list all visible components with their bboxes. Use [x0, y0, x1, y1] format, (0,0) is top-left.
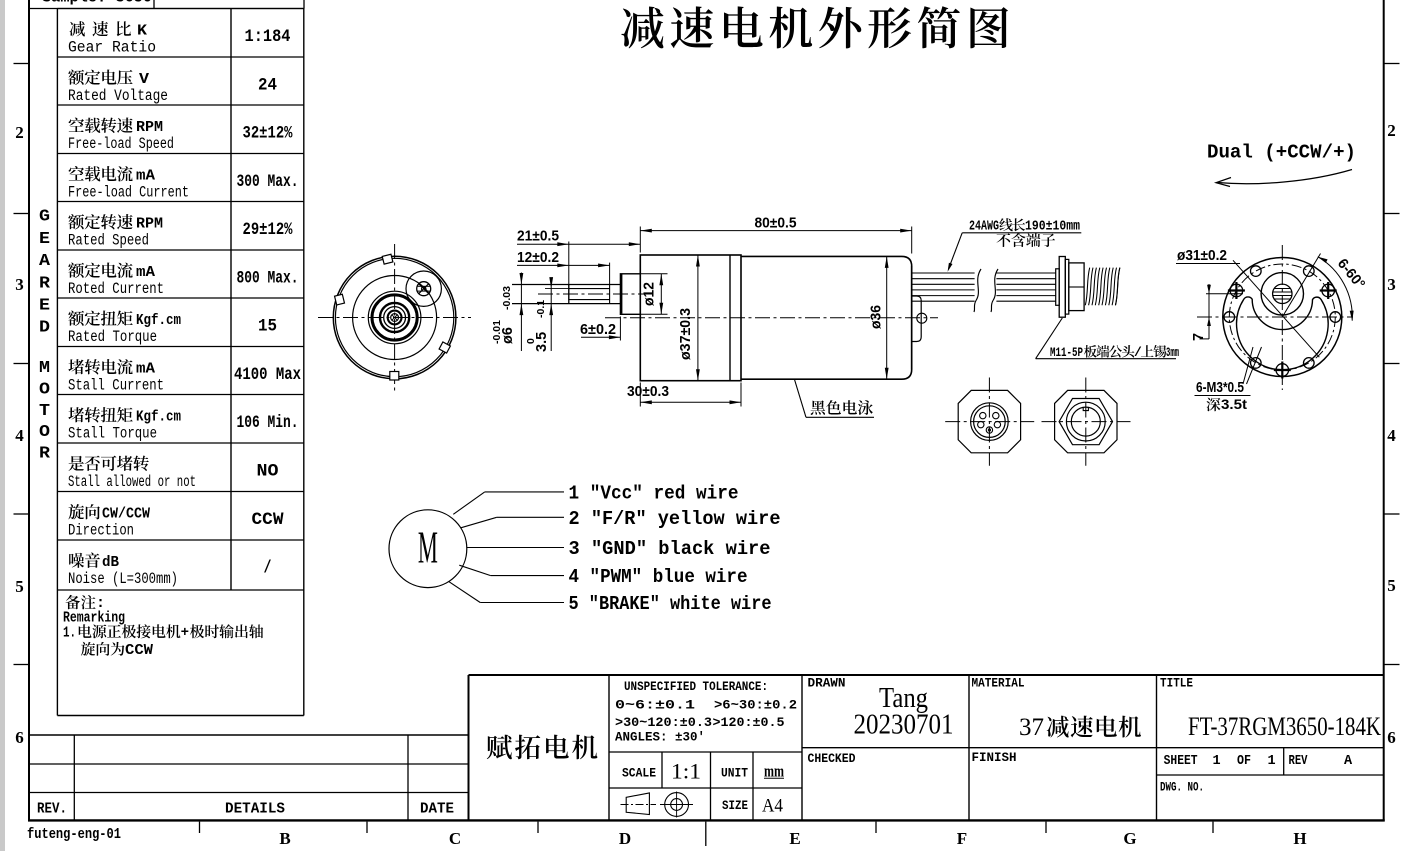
svg-text:UNIT: UNIT	[721, 765, 748, 780]
svg-text:5: 5	[15, 577, 24, 596]
svg-text:20230701: 20230701	[854, 709, 954, 741]
svg-text:DETAILS: DETAILS	[225, 801, 285, 818]
svg-text:H: H	[1293, 829, 1306, 848]
svg-text:A4: A4	[762, 796, 783, 817]
svg-text:E: E	[39, 297, 50, 316]
svg-text:RPM: RPM	[136, 119, 163, 136]
svg-text:CW/CCW: CW/CCW	[102, 506, 150, 523]
svg-text:3mm: 3mm	[1166, 345, 1179, 360]
svg-text:TITLE: TITLE	[1160, 677, 1193, 691]
svg-text:1: 1	[1268, 754, 1276, 769]
svg-text:mA: mA	[136, 361, 155, 378]
svg-text:>6~30:±0.2: >6~30:±0.2	[714, 698, 797, 713]
svg-text:G: G	[1123, 829, 1136, 848]
svg-text:G: G	[39, 208, 50, 227]
svg-text:21±0.5: 21±0.5	[517, 229, 559, 245]
svg-text:Sample: 3650: Sample: 3650	[42, 0, 152, 7]
svg-text:FINISH: FINISH	[972, 751, 1017, 765]
svg-text:2 ″F/R″ yellow wire: 2 ″F/R″ yellow wire	[569, 508, 781, 530]
svg-text:6: 6	[1387, 728, 1396, 747]
svg-text:M11-5P: M11-5P	[1050, 345, 1083, 360]
svg-text:F: F	[957, 829, 967, 848]
svg-text:Roted Current: Roted Current	[68, 280, 164, 298]
svg-text:30±0.3: 30±0.3	[627, 384, 669, 400]
svg-text:D: D	[39, 319, 50, 338]
svg-text:UNSPECIFIED TOLERANCE:: UNSPECIFIED TOLERANCE:	[624, 679, 768, 694]
svg-text:A: A	[39, 252, 51, 271]
svg-text:12±0.2: 12±0.2	[517, 250, 559, 266]
svg-text:4100 Max: 4100 Max	[234, 365, 301, 385]
svg-text:29±12%: 29±12%	[243, 220, 293, 240]
svg-text:Gear Ratio: Gear Ratio	[68, 39, 156, 57]
svg-text:1: 1	[1213, 754, 1221, 769]
svg-text:MATERIAL: MATERIAL	[972, 677, 1025, 691]
svg-text:/: /	[1134, 345, 1142, 360]
svg-text:dB: dB	[102, 554, 119, 571]
svg-text:CCW: CCW	[125, 642, 153, 659]
svg-text:37: 37	[1019, 714, 1044, 741]
svg-text:4: 4	[1387, 426, 1396, 445]
svg-text:E: E	[39, 230, 50, 249]
svg-text:ANGLES: ±30': ANGLES: ±30'	[615, 730, 705, 745]
svg-text:24: 24	[258, 76, 277, 96]
svg-text:80±0.5: 80±0.5	[755, 216, 797, 232]
svg-text:mm: mm	[764, 761, 784, 780]
svg-text:ø36: ø36	[869, 305, 885, 329]
svg-text:-0.03: -0.03	[501, 286, 513, 310]
svg-text:/: /	[264, 559, 272, 579]
svg-text:mA: mA	[136, 168, 155, 185]
svg-text:6: 6	[15, 728, 24, 747]
svg-text:Free-load Current: Free-load Current	[68, 184, 189, 202]
svg-text:C: C	[449, 829, 461, 848]
svg-text:SIZE: SIZE	[722, 798, 748, 813]
svg-text:V: V	[139, 71, 149, 88]
svg-text:REV.: REV.	[37, 801, 67, 818]
svg-text:300 Max.: 300 Max.	[237, 172, 299, 192]
svg-text:0~6:±0.1: 0~6:±0.1	[615, 698, 695, 713]
svg-text:32±12%: 32±12%	[243, 124, 293, 144]
svg-text:-0.01: -0.01	[491, 320, 503, 344]
svg-text:1.: 1.	[63, 625, 76, 642]
svg-text:Rated Torque: Rated Torque	[68, 328, 157, 346]
svg-text:2: 2	[1387, 121, 1396, 140]
svg-text:SHEET: SHEET	[1164, 754, 1198, 769]
svg-text:B: B	[279, 829, 290, 848]
svg-text:OF: OF	[1237, 754, 1251, 769]
svg-text:FT-37RGM3650-184K: FT-37RGM3650-184K	[1188, 712, 1381, 741]
svg-text:DRAWN: DRAWN	[808, 677, 846, 691]
svg-text:800 Max.: 800 Max.	[237, 269, 299, 289]
svg-text:Stall Torque: Stall Torque	[68, 425, 157, 443]
svg-text:CHECKED: CHECKED	[808, 752, 856, 766]
svg-text:>30~120:±0.3: >30~120:±0.3	[615, 715, 712, 730]
svg-text:Noise (L=300mm): Noise (L=300mm)	[68, 570, 178, 588]
svg-text:ø37±0.3: ø37±0.3	[678, 308, 694, 360]
svg-text:A: A	[1344, 754, 1353, 769]
svg-text:5 ″BRAKE″ white wire: 5 ″BRAKE″ white wire	[569, 593, 772, 615]
svg-text:M: M	[39, 359, 50, 378]
svg-text:4: 4	[15, 426, 24, 445]
svg-text:7: 7	[1191, 333, 1207, 341]
svg-text:3.5t: 3.5t	[1221, 396, 1247, 412]
svg-text:CCW: CCW	[252, 510, 284, 530]
svg-text:15: 15	[258, 317, 277, 337]
svg-text:2: 2	[15, 123, 24, 142]
svg-text:SCALE: SCALE	[622, 765, 656, 780]
svg-text:Free-load Speed: Free-load Speed	[68, 135, 174, 153]
svg-text:6-M3*0.5: 6-M3*0.5	[1196, 379, 1244, 396]
svg-text:Rated Speed: Rated Speed	[68, 232, 149, 250]
svg-text:O: O	[39, 423, 50, 442]
svg-text:Dual (+CCW/+): Dual (+CCW/+)	[1207, 142, 1356, 164]
svg-text:futeng-eng-01: futeng-eng-01	[27, 826, 121, 843]
svg-text:3 ″GND″ black wire: 3 ″GND″ black wire	[569, 538, 771, 560]
svg-text:REV: REV	[1289, 754, 1309, 769]
svg-text:1 ″Vcc″ red wire: 1 ″Vcc″ red wire	[569, 482, 739, 504]
svg-text:>120:±0.5: >120:±0.5	[713, 715, 785, 730]
svg-text:M: M	[418, 522, 438, 573]
svg-text:D: D	[619, 829, 631, 848]
svg-text:4 ″PWM″ blue wire: 4 ″PWM″ blue wire	[569, 566, 748, 588]
svg-text:5: 5	[1387, 576, 1396, 595]
svg-text:RPM: RPM	[136, 216, 163, 233]
svg-text:K: K	[137, 23, 147, 40]
svg-text:0: 0	[525, 338, 537, 344]
svg-text:O: O	[39, 381, 50, 400]
svg-text:Direction: Direction	[68, 522, 134, 540]
svg-text:DWG. NO.: DWG. NO.	[1160, 781, 1204, 795]
svg-text:106 Min.: 106 Min.	[237, 413, 299, 433]
svg-text:+: +	[181, 625, 189, 641]
svg-text:ø12: ø12	[642, 282, 658, 306]
svg-text:NO: NO	[257, 462, 279, 482]
svg-text:-0.1: -0.1	[535, 300, 547, 318]
svg-text:3: 3	[1387, 275, 1396, 294]
svg-text:mA: mA	[136, 264, 155, 281]
svg-text:ø31±0.2: ø31±0.2	[1177, 248, 1227, 264]
svg-text:R: R	[39, 274, 51, 293]
svg-text:1:1: 1:1	[671, 759, 701, 784]
svg-text:3: 3	[15, 275, 24, 294]
svg-text:1:184: 1:184	[245, 27, 291, 47]
svg-text:R: R	[39, 444, 51, 463]
svg-text:DATE: DATE	[420, 801, 454, 818]
svg-text:Stall allowed or not: Stall allowed or not	[68, 473, 196, 491]
svg-text:Rated Voltage: Rated Voltage	[68, 87, 168, 105]
svg-text:E: E	[789, 829, 800, 848]
svg-text:Kgf.cm: Kgf.cm	[136, 409, 181, 426]
svg-text:Stall Current: Stall Current	[68, 377, 164, 395]
svg-text:T: T	[39, 402, 50, 421]
svg-text:6±0.2: 6±0.2	[580, 322, 616, 338]
svg-text:Kgf.cm: Kgf.cm	[136, 312, 181, 329]
